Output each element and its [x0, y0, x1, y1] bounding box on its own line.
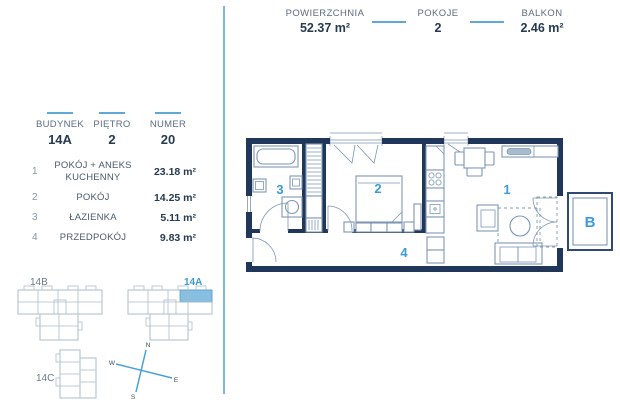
highlighted-unit: [180, 290, 212, 302]
room-name: POKÓJ: [50, 192, 136, 204]
sink-icon: [253, 179, 266, 192]
room-area: 14.25 m²: [140, 192, 196, 204]
washing-machine-icon: [282, 197, 302, 217]
balcony-door-icon: [533, 197, 557, 247]
plan-label-balcony: B: [585, 214, 596, 231]
compass-south: S: [131, 394, 136, 400]
room-number: 4: [32, 232, 46, 243]
unit-building-value: 14A: [28, 132, 92, 147]
kitchen-units: [426, 146, 444, 263]
sideboard-icon: [502, 146, 558, 157]
stat-rooms-label: POKOJE: [398, 8, 478, 19]
compass-east: E: [174, 377, 179, 384]
plan-label-living: 1: [503, 182, 510, 197]
compass-north: N: [146, 342, 151, 349]
room-name: ŁAZIENKA: [50, 212, 136, 224]
stat-area-value: 52.37 m²: [265, 21, 385, 35]
coffee-table-icon: [498, 208, 540, 243]
unit-number-label: NUMER: [140, 119, 196, 130]
bathtub-icon: [254, 146, 298, 167]
plan-label-hall: 4: [400, 245, 408, 260]
compass-west: W: [109, 360, 116, 367]
unit-floor: PIĘTRO 2: [91, 112, 133, 147]
unit-building-label: BUDYNEK: [28, 119, 92, 130]
wardrobe-shaft: [306, 144, 322, 232]
apartment-floorplan: 1 2 3 4 B: [240, 118, 620, 284]
room-number: 2: [32, 192, 46, 203]
building-thumbnail-14A: 14A: [122, 276, 218, 344]
unit-floor-value: 2: [91, 132, 133, 147]
plan-label-bathroom: 3: [276, 182, 283, 197]
bed-icon: [344, 176, 421, 232]
floorplan-card: POWIERZCHNIA 52.37 m² POKOJE 2 BALKON 2.…: [0, 0, 620, 400]
accent-bar: [47, 112, 73, 114]
room-name: PRZEDPOKÓJ: [50, 232, 136, 244]
armchair-icon: [477, 205, 498, 231]
stat-rooms: POKOJE 2: [398, 8, 478, 35]
room-area: 23.18 m²: [140, 166, 196, 178]
room-name: POKÓJ + ANEKS KUCHENNY: [50, 160, 136, 184]
room-number: 1: [32, 166, 46, 177]
compass-rose: N W E S: [106, 340, 182, 400]
building-thumbnail-14C: 14C: [24, 348, 114, 400]
unit-floor-label: PIĘTRO: [91, 119, 133, 130]
room-number: 3: [32, 212, 46, 223]
stat-area: POWIERZCHNIA 52.37 m²: [265, 8, 385, 35]
room-area: 5.11 m²: [140, 212, 196, 224]
unit-building: BUDYNEK 14A: [28, 112, 92, 147]
stat-rooms-value: 2: [398, 21, 478, 35]
room-list: 1 POKÓJ + ANEKS KUCHENNY 23.18 m² 2 POKÓ…: [32, 160, 196, 244]
toilet-icon: [290, 176, 302, 189]
dining-table-icon: [455, 148, 494, 176]
accent-bar: [155, 112, 181, 114]
stat-balcony-value: 2.46 m²: [492, 21, 592, 35]
plan-label-bedroom: 2: [374, 181, 381, 196]
stat-balcony: BALKON 2.46 m²: [492, 8, 592, 35]
unit-number: NUMER 20: [140, 112, 196, 147]
building-label: 14C: [36, 373, 54, 384]
building-thumbnail-14B: 14B: [12, 276, 108, 344]
stat-balcony-label: BALKON: [492, 8, 592, 19]
room-area: 9.83 m²: [140, 232, 196, 244]
unit-number-value: 20: [140, 132, 196, 147]
vertical-divider: [223, 6, 225, 394]
stat-area-label: POWIERZCHNIA: [265, 8, 385, 19]
accent-bar: [99, 112, 125, 114]
